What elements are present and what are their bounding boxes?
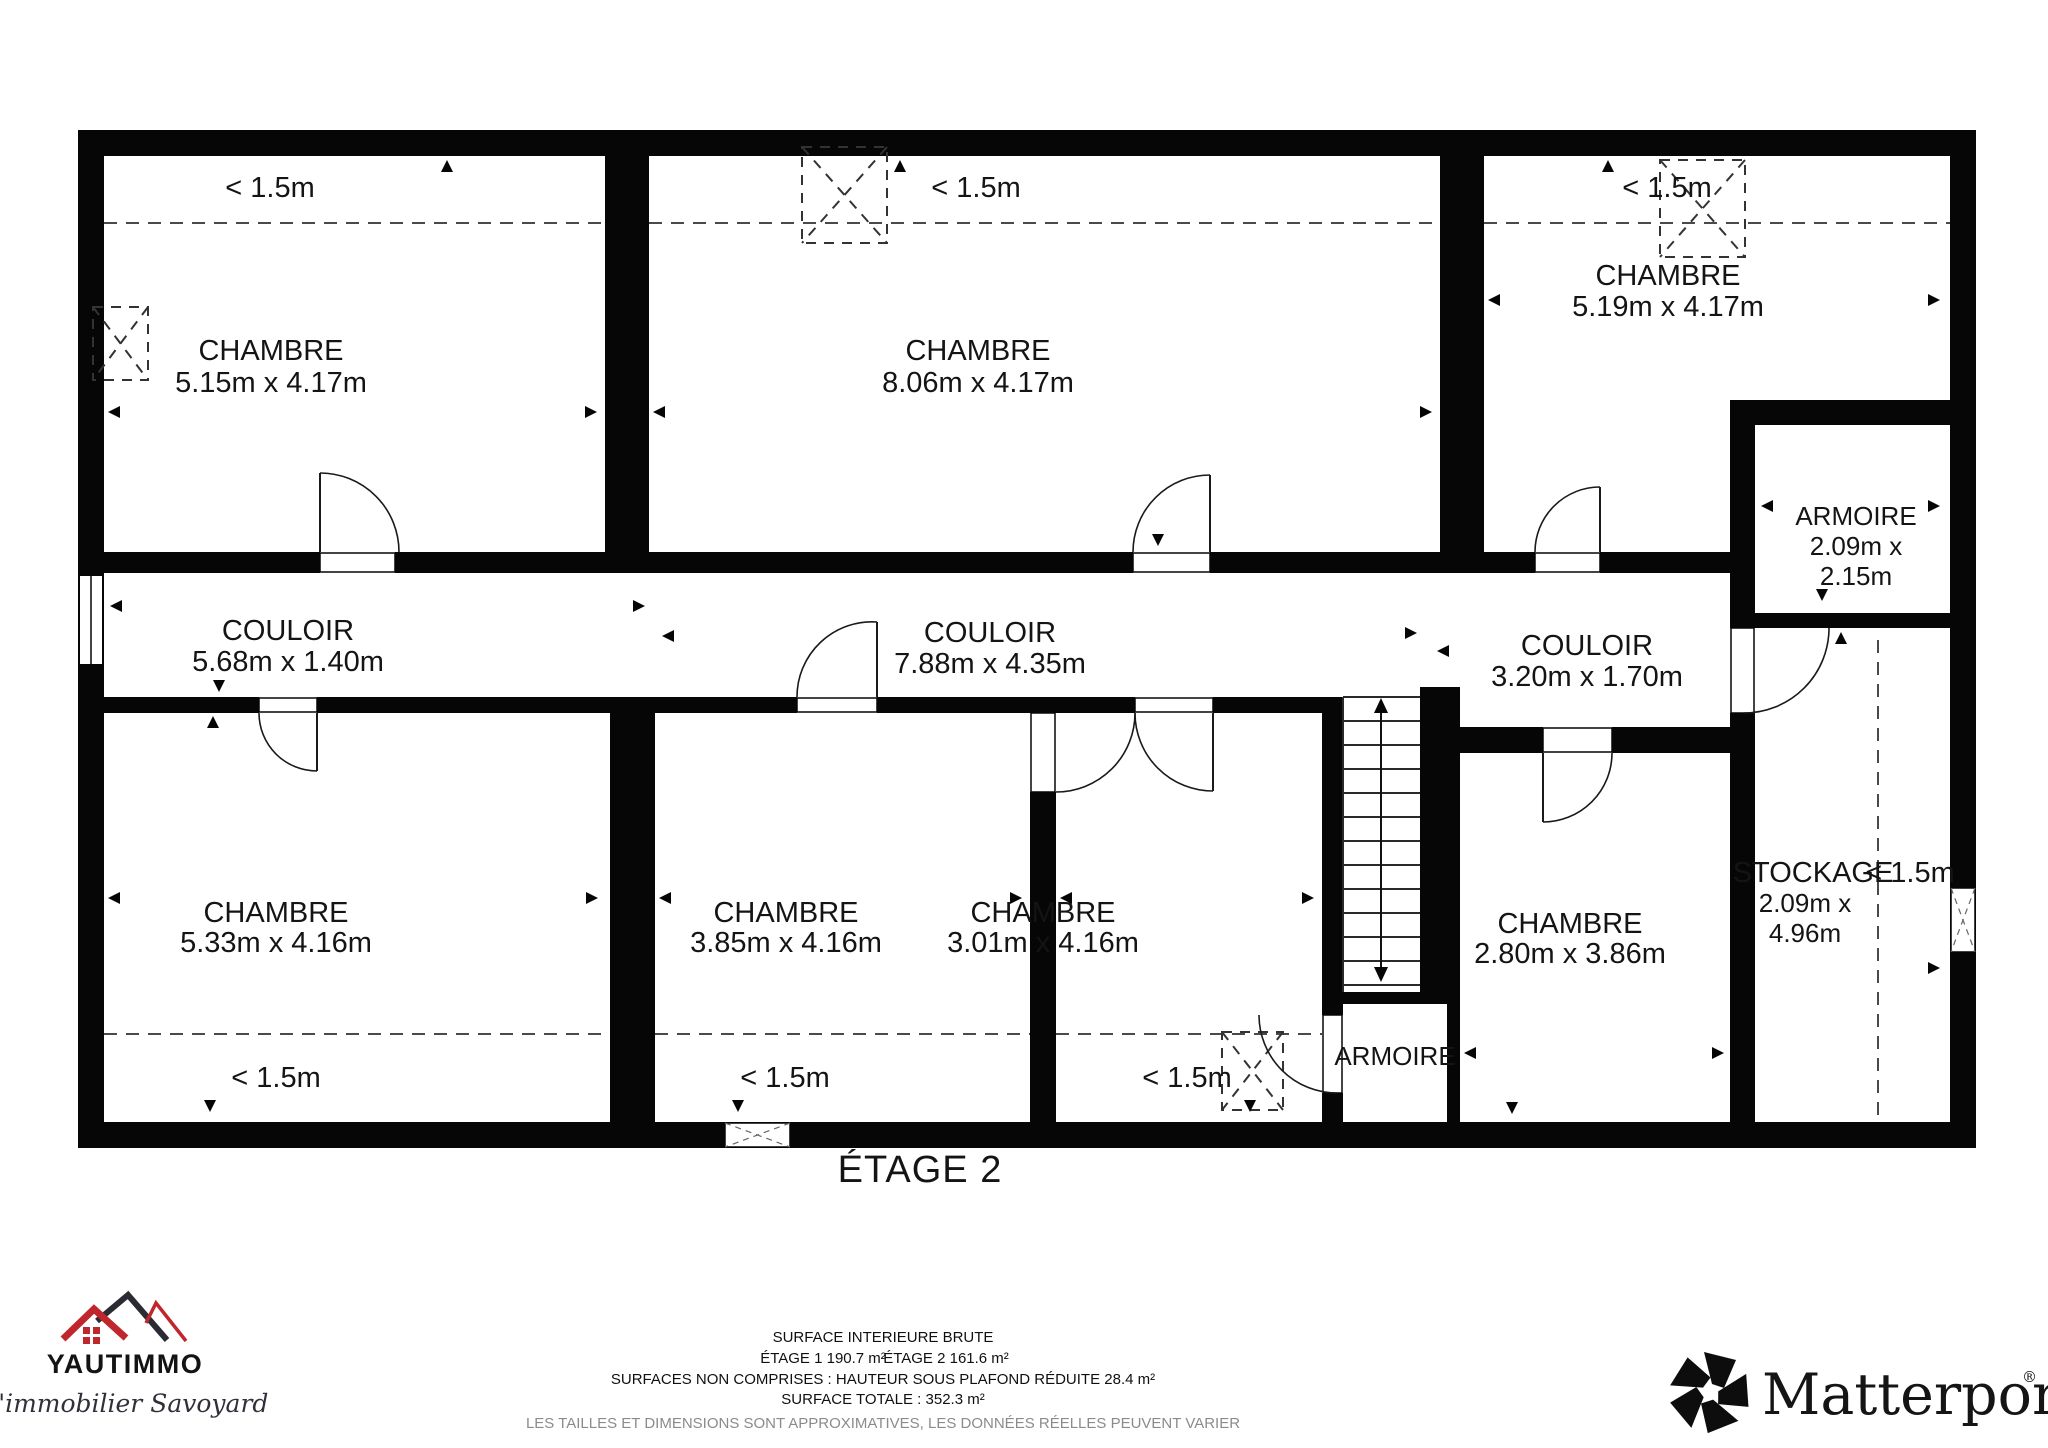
floorplan-page: CHAMBRE 5.15m x 4.17m CHAMBRE 8.06m x 4.… [0, 0, 2048, 1448]
surface-title: SURFACE INTERIEURE BRUTE [773, 1329, 994, 1346]
surface-non-comprises: SURFACES NON COMPRISES : HAUTEUR SOUS PL… [611, 1371, 1155, 1388]
room-label-chambre-bottom-right: CHAMBRE [1497, 908, 1642, 940]
door [1731, 628, 1829, 713]
low-ceiling-note: < 1.5m [1622, 172, 1711, 204]
room-label-chambre-top-left: CHAMBRE [198, 335, 343, 367]
room-dims2-armoire-top-right: 2.15m [1820, 561, 1892, 591]
door [1133, 475, 1210, 572]
door [1535, 487, 1600, 572]
low-ceiling-note: < 1.5m [231, 1062, 320, 1094]
room-dims2-stockage: 4.96m [1769, 918, 1841, 948]
agency-logo: YAUTIMMO L'immobilier Savoyard [0, 1295, 268, 1418]
room-label-couloir-left: COULOIR [222, 615, 354, 647]
matterport-registered: ® [2022, 1368, 2037, 1386]
window [725, 1123, 790, 1147]
room-dims-couloir-right: 3.20m x 1.70m [1491, 661, 1683, 693]
low-ceiling-note: < 1.5m [1142, 1062, 1231, 1094]
low-ceiling-note-stockage: < 1.5m [1865, 857, 1954, 889]
surface-etage1: ÉTAGE 1 190.7 m² [760, 1350, 886, 1367]
surface-etage2: ÉTAGE 2 161.6 m² [883, 1350, 1009, 1367]
agency-tagline: L'immobilier Savoyard [0, 1389, 268, 1418]
room-label-couloir-right: COULOIR [1521, 630, 1653, 662]
room-dims-chambre-bottom-left: 5.33m x 4.16m [180, 927, 372, 959]
room-dims-couloir-mid: 7.88m x 4.35m [894, 648, 1086, 680]
door [1259, 1015, 1342, 1093]
room-label-chambre-top-mid: CHAMBRE [905, 335, 1050, 367]
door [320, 473, 399, 572]
matterport-logo: Matterport ® [1665, 1352, 2048, 1440]
door [797, 622, 877, 712]
room-labels: CHAMBRE 5.15m x 4.17m CHAMBRE 8.06m x 4.… [175, 260, 1955, 1071]
room-label-armoire-top-right: ARMOIRE [1795, 501, 1916, 531]
room-dims-couloir-left: 5.68m x 1.40m [192, 646, 384, 678]
low-ceiling-note: < 1.5m [225, 172, 314, 204]
matterport-name: Matterport [1762, 1362, 2048, 1428]
room-dims-chambre-top-mid: 8.06m x 4.17m [882, 367, 1074, 399]
room-label-chambre-top-right: CHAMBRE [1595, 260, 1740, 292]
door [1031, 713, 1135, 792]
room-dims-chambre-bottom-mid2: 3.01m x 4.16m [947, 927, 1139, 959]
room-dims-chambre-top-right: 5.19m x 4.17m [1572, 291, 1764, 323]
surface-summary: SURFACE INTERIEURE BRUTE ÉTAGE 1 190.7 m… [526, 1329, 1240, 1432]
surface-disclaimer: LES TAILLES ET DIMENSIONS SONT APPROXIMA… [526, 1415, 1240, 1432]
room-dims1-armoire-top-right: 2.09m x [1810, 531, 1903, 561]
agency-name: YAUTIMMO [47, 1349, 204, 1379]
room-label-chambre-bottom-mid: CHAMBRE [713, 897, 858, 929]
window [79, 575, 103, 665]
room-label-chambre-bottom-mid2: CHAMBRE [970, 897, 1115, 929]
door [1135, 698, 1213, 791]
skylight-box [802, 147, 887, 243]
room-dims-chambre-top-left: 5.15m x 4.17m [175, 367, 367, 399]
low-ceiling-note: < 1.5m [740, 1062, 829, 1094]
door [259, 698, 317, 771]
room-label-chambre-bottom-left: CHAMBRE [203, 897, 348, 929]
floorplan-svg: CHAMBRE 5.15m x 4.17m CHAMBRE 8.06m x 4.… [0, 0, 2048, 1448]
low-ceiling-note: < 1.5m [931, 172, 1020, 204]
window [1951, 888, 1975, 952]
room-label-couloir-mid: COULOIR [924, 617, 1056, 649]
room-dims-chambre-bottom-mid: 3.85m x 4.16m [690, 927, 882, 959]
floor-title: ÉTAGE 2 [838, 1148, 1003, 1191]
agency-logo-icon [63, 1295, 186, 1344]
door [1543, 728, 1612, 822]
matterport-icon [1665, 1352, 1756, 1440]
surface-totale: SURFACE TOTALE : 352.3 m² [781, 1391, 984, 1408]
room-dims1-stockage: 2.09m x [1759, 888, 1852, 918]
room-dims-chambre-bottom-right: 2.80m x 3.86m [1474, 938, 1666, 970]
room-label-armoire-bottom: ARMOIRE [1334, 1041, 1455, 1071]
staircase [1343, 697, 1420, 992]
